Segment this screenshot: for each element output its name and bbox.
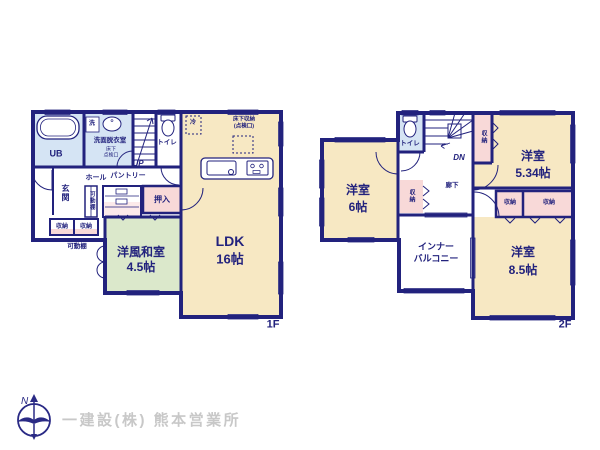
f1-washroom-label: 洗面脱衣室: [94, 138, 127, 145]
f2-balcony-line-2: バルコニー: [414, 255, 459, 264]
f2-room85-name: 洋室: [511, 246, 535, 258]
f1-toilet-label: トイレ: [157, 140, 177, 147]
f1-floor-storage-1: 床下収納: [233, 117, 255, 123]
f1-hall-label: ホール: [86, 175, 107, 182]
f1-washer-label: 洗: [89, 121, 95, 127]
floor1-label: 1F: [267, 320, 280, 331]
compass-n-letter: N: [21, 396, 29, 407]
f2-balcony-line-1: インナー: [418, 243, 454, 252]
f2-toilet-label: トイレ: [400, 141, 420, 148]
bathtub-icon: [37, 116, 79, 139]
f1-storage-b-label: 収納: [80, 224, 92, 230]
f1-stairs-up-label: UP: [132, 160, 143, 168]
f1-washitsu-name: 洋風和室: [117, 246, 165, 258]
f1-washitsu-size: 4.5帖: [127, 261, 156, 273]
f1-fridge-label: 冷: [190, 120, 196, 126]
f2-room534-name: 洋室: [521, 150, 545, 162]
f1-toilet-icon: [161, 115, 175, 136]
f2-corridor-label: 廊下: [446, 183, 459, 190]
f1-ub-label: UB: [50, 150, 63, 159]
f1-movable-shelf-upper-label: 可動棚: [88, 191, 94, 211]
company-name: 一建設(株) 熊本営業所: [62, 409, 241, 430]
floor2-plan-graphics: [318, 105, 580, 337]
f2-room534-size: 5.34帖: [515, 167, 550, 179]
kitchen-counter-icon: [201, 158, 273, 179]
f1-entrance-label: 玄関: [61, 184, 69, 202]
f1-ldk-size: 16帖: [216, 253, 243, 266]
f1-storage-a-label: 収納: [56, 224, 68, 230]
floor2-label: 2F: [559, 320, 572, 331]
f1-movable-shelf-lower-label: 可動棚: [67, 244, 87, 251]
f2-toilet-icon: [403, 116, 417, 137]
f1-closet-label: 押入: [154, 196, 170, 204]
f1-stairs-icon: [133, 118, 156, 164]
f1-pantry-label: パントリー: [110, 173, 145, 180]
f1-floor-storage-2: (点検口): [234, 124, 254, 130]
f2-storage-b-label: 収納: [543, 200, 555, 206]
f2-room6-name: 洋室: [346, 184, 370, 196]
f2-storage-west-label: 収納: [408, 189, 414, 203]
f2-room85-size: 8.5帖: [509, 264, 538, 276]
floorplan-image: UB 洗 洗面脱衣室 床下 点検口 トイレ UP ホール パントリー 玄関 可動…: [0, 0, 600, 450]
f2-stairs-icon: [424, 113, 473, 149]
f1-washroom-note-2: 点検口: [103, 154, 118, 159]
f2-storage-stair-label: 収納: [480, 130, 486, 144]
f2-stairs-dn-label: DN: [453, 154, 465, 162]
f2-room6-size: 6帖: [349, 201, 368, 213]
compass-north-icon: N: [13, 392, 55, 446]
f2-storage-a-label: 収納: [504, 200, 516, 206]
f1-ldk-name: LDK: [216, 234, 245, 248]
